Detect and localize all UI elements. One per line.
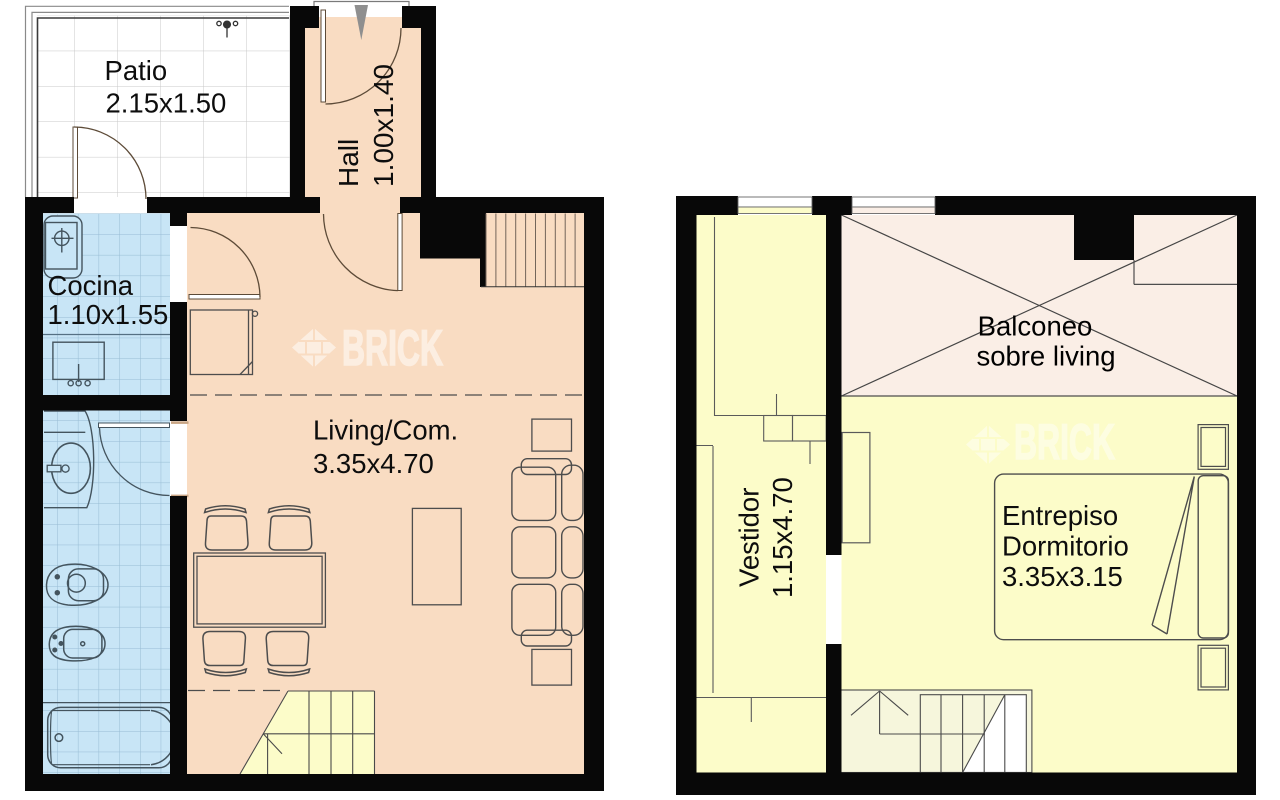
svg-text:Living/Com.: Living/Com. <box>313 415 458 446</box>
svg-text:1.10x1.55: 1.10x1.55 <box>48 299 169 330</box>
svg-text:Balconeo: Balconeo <box>978 311 1093 342</box>
svg-text:Entrepiso: Entrepiso <box>1002 500 1118 531</box>
svg-text:3.35x4.70: 3.35x4.70 <box>313 448 434 479</box>
svg-text:Cocina: Cocina <box>48 270 134 301</box>
svg-text:Vestidor: Vestidor <box>734 488 765 587</box>
svg-text:1.00x1.40: 1.00x1.40 <box>368 64 399 187</box>
svg-text:Dormitorio: Dormitorio <box>1002 531 1129 562</box>
svg-text:BRICK: BRICK <box>342 320 443 376</box>
svg-text:3.35x3.15: 3.35x3.15 <box>1002 561 1123 592</box>
svg-text:sobre living: sobre living <box>976 341 1115 372</box>
svg-text:2.15x1.50: 2.15x1.50 <box>106 88 227 119</box>
svg-text:1.15x4.70: 1.15x4.70 <box>767 477 798 598</box>
svg-text:Patio: Patio <box>105 55 168 86</box>
svg-text:BRICK: BRICK <box>1014 414 1115 470</box>
svg-text:Hall: Hall <box>333 139 364 187</box>
